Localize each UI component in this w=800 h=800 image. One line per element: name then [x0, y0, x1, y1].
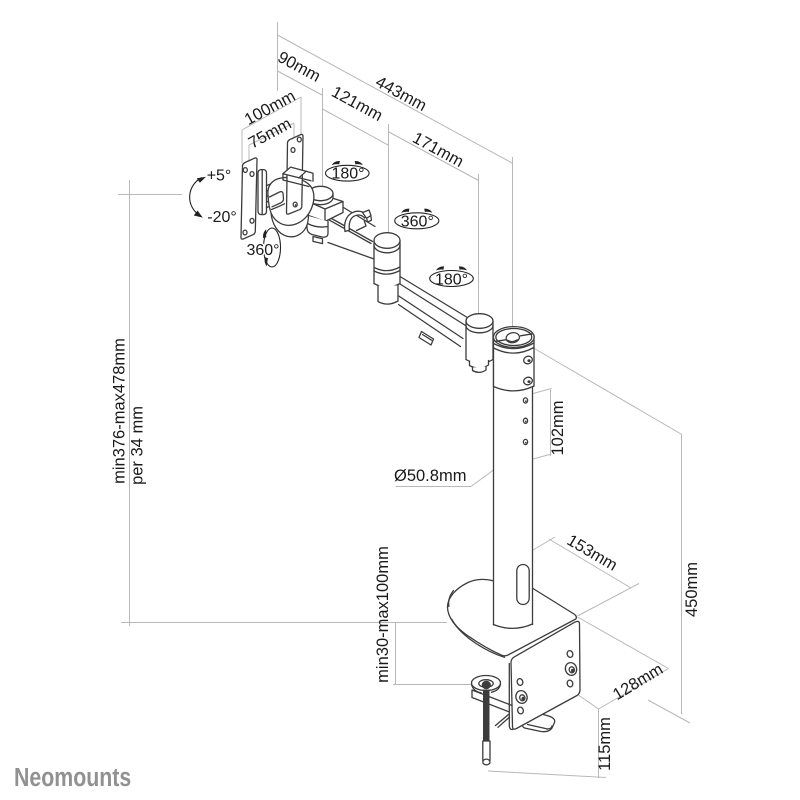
svg-text:per 34 mm: per 34 mm — [129, 406, 147, 485]
svg-text:+5°: +5° — [207, 168, 232, 185]
svg-text:180°: 180° — [331, 166, 364, 183]
svg-text:360°: 360° — [401, 214, 434, 231]
svg-text:180°: 180° — [435, 271, 468, 288]
svg-text:Neomounts: Neomounts — [14, 763, 131, 793]
svg-text:min376-max478mm: min376-max478mm — [111, 338, 129, 484]
svg-text:450mm: 450mm — [683, 562, 701, 617]
svg-text:360°: 360° — [246, 242, 279, 259]
svg-text:115mm: 115mm — [596, 717, 614, 771]
svg-text:Ø50.8mm: Ø50.8mm — [394, 467, 466, 485]
svg-text:min30-max100mm: min30-max100mm — [374, 546, 392, 683]
svg-text:102mm: 102mm — [549, 400, 567, 455]
svg-text:-20°: -20° — [207, 209, 237, 226]
